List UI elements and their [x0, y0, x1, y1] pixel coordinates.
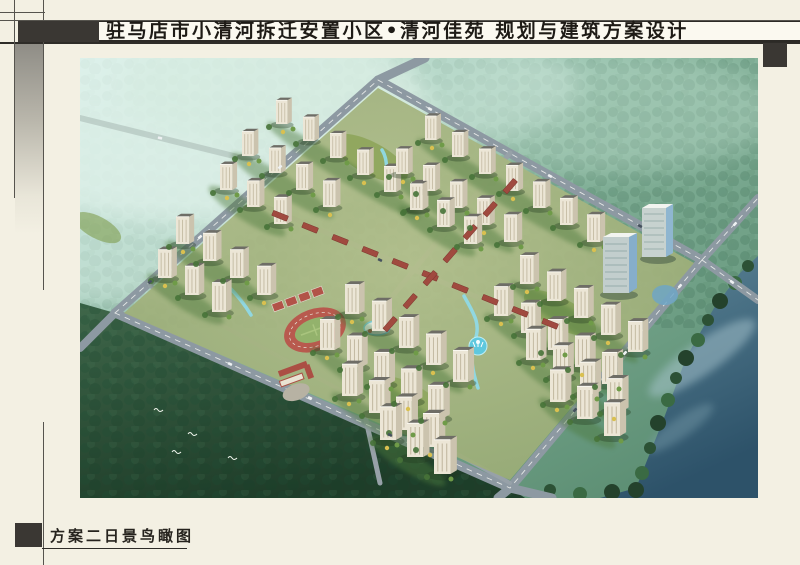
caption-underline	[42, 548, 187, 549]
aerial-rendering-image	[80, 58, 758, 498]
vertical-rule-2-lower	[43, 422, 44, 565]
caption-accent-square	[15, 523, 42, 547]
corner-rule-horizontal	[0, 12, 45, 13]
caption-label: 方案二日景鸟瞰图	[50, 525, 194, 547]
vertical-rule-2	[43, 0, 44, 290]
presentation-page: { "title_bar": { "text": "驻马店市小清河拆迁安置小区•…	[0, 0, 800, 565]
page-title: 驻马店市小清河拆迁安置小区•清河佳苑 规划与建筑方案设计	[106, 20, 796, 43]
gradient-bar-ornament	[15, 44, 43, 234]
top-right-accent-square	[763, 43, 787, 67]
title-accent-square	[18, 21, 99, 42]
